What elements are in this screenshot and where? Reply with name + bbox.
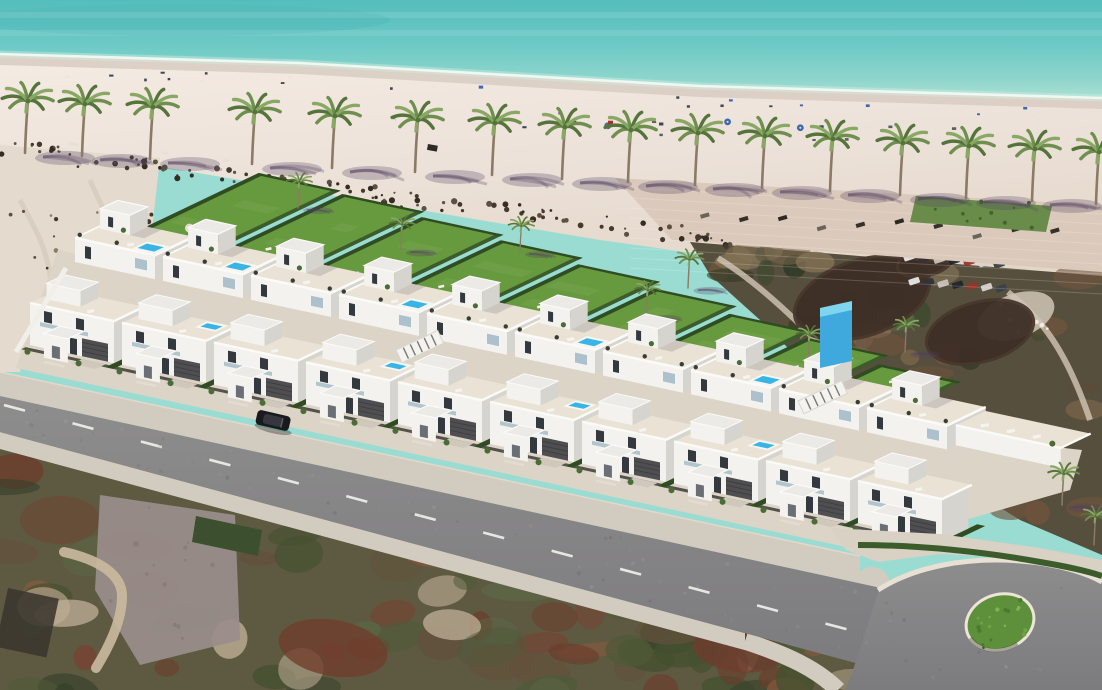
debris-rock: [374, 196, 378, 200]
palm-crown: [83, 102, 88, 107]
asphalt-fleck: [620, 537, 622, 539]
front-shrub: [628, 479, 634, 485]
debris-rock: [190, 174, 194, 178]
debris-rock: [368, 186, 373, 191]
parapet-planter: [944, 419, 948, 423]
debris-rock: [389, 197, 395, 203]
parapet-planter: [782, 384, 786, 388]
window: [877, 416, 883, 429]
porch-door: [604, 464, 612, 478]
debris-rock: [486, 201, 492, 207]
asphalt-fleck: [606, 564, 608, 566]
rust-patch: [20, 496, 100, 544]
debris-rock: [606, 216, 608, 218]
porch-door: [696, 484, 704, 498]
dirt-speck: [210, 563, 215, 568]
debris-rock: [440, 209, 443, 212]
asphalt-fleck: [419, 514, 421, 516]
dirt-speck: [162, 582, 167, 587]
asphalt-fleck: [1060, 587, 1063, 590]
front-shrub: [260, 400, 266, 406]
porch-door: [144, 365, 152, 379]
parapet-planter: [555, 335, 559, 339]
terrace-plant: [121, 228, 126, 233]
window: [504, 410, 512, 423]
porch-door: [328, 405, 336, 419]
lot-rock: [9, 213, 13, 217]
asphalt-fleck: [79, 439, 82, 442]
sea-light-streak: [0, 30, 1102, 36]
parapet-planter: [856, 400, 860, 404]
window: [44, 311, 52, 324]
palm-crown: [26, 99, 31, 104]
asphalt-fleck: [683, 591, 687, 595]
beach-furniture-speck: [1023, 107, 1027, 110]
window: [349, 303, 355, 316]
beach-furniture-speck: [391, 119, 395, 122]
asphalt-fleck: [529, 524, 533, 528]
asphalt-fleck: [42, 434, 45, 437]
asphalt-fleck: [159, 469, 163, 473]
debris-rock: [658, 227, 662, 231]
beach-furniture-speck: [109, 75, 113, 77]
parapet-planter: [680, 362, 684, 366]
asphalt-fleck: [37, 433, 40, 436]
palm-crown: [151, 105, 156, 110]
porch-door: [788, 504, 796, 518]
parapet-planter: [606, 346, 610, 350]
debris-rock: [176, 174, 178, 176]
debris-rock: [578, 222, 584, 228]
terrace-plant: [825, 379, 830, 384]
lot-rock: [96, 211, 99, 214]
debris-rock: [416, 204, 419, 207]
window: [596, 430, 604, 443]
beach-sunbed: [161, 151, 167, 155]
beach-furniture-speck: [769, 105, 772, 107]
front-shrub: [352, 420, 358, 426]
debris-rock: [721, 239, 723, 241]
asphalt-fleck: [785, 629, 787, 631]
debris-rock: [710, 237, 712, 239]
parapet-planter: [78, 233, 82, 237]
beach-furniture-speck: [812, 139, 815, 141]
parapet-planter: [166, 252, 170, 256]
debris-rock: [442, 201, 445, 204]
debris-rock: [244, 173, 248, 177]
asphalt-fleck: [795, 624, 799, 628]
asphalt-fleck: [192, 461, 194, 463]
lawn-speck: [1003, 221, 1007, 225]
lot-rock: [50, 214, 53, 217]
front-shrub: [24, 349, 30, 355]
beach-furniture-speck: [144, 79, 147, 82]
window: [173, 265, 179, 278]
palm-crown: [493, 121, 498, 126]
debris-rock: [503, 201, 509, 207]
parapet-planter: [907, 411, 911, 415]
asphalt-fleck: [865, 641, 868, 644]
window: [548, 311, 553, 322]
asphalt-fleck: [36, 409, 38, 411]
debris-rock: [461, 209, 464, 212]
debris-rock: [37, 142, 42, 147]
beach-furniture-speck: [719, 102, 723, 104]
window: [108, 217, 113, 228]
debris-rock: [77, 165, 80, 168]
beach-furniture-speck: [205, 72, 208, 74]
beach-furniture-speck: [1070, 141, 1074, 143]
beach-furniture-speck: [888, 126, 892, 129]
asphalt-fleck: [515, 533, 517, 535]
debris-rock: [541, 209, 543, 211]
entrance-door: [530, 437, 537, 455]
window: [352, 377, 360, 390]
dirt-speck: [152, 564, 155, 567]
debris-rock: [701, 235, 704, 238]
beach-sunbed: [59, 148, 65, 152]
dirt-speck: [187, 542, 189, 544]
debris-rock: [409, 192, 412, 195]
beach-furniture-speck: [845, 138, 849, 141]
palm-crown: [1094, 515, 1097, 518]
debris-rock: [415, 194, 419, 198]
front-shrub: [668, 487, 674, 493]
window: [228, 351, 236, 364]
entrance-door: [346, 397, 353, 415]
asphalt-fleck: [658, 579, 662, 583]
debris-rock: [624, 232, 629, 237]
asphalt-fleck: [889, 620, 891, 622]
window: [628, 437, 636, 450]
front-shrub: [392, 428, 398, 434]
debris-rock: [348, 190, 352, 194]
debris-rock: [680, 224, 684, 228]
asphalt-fleck: [695, 585, 699, 589]
debris-rock: [161, 168, 165, 172]
asphalt-fleck: [435, 528, 437, 530]
debris-rock: [422, 206, 427, 211]
asphalt-fleck: [396, 509, 398, 511]
beach-furniture-speck: [1036, 114, 1039, 117]
window: [261, 284, 267, 297]
courtyard-speck: [1040, 323, 1045, 328]
debris-rock: [233, 180, 236, 183]
dirt-speck: [173, 623, 177, 627]
beach-furniture-speck: [720, 104, 723, 107]
window: [444, 397, 452, 410]
beach-furniture-speck: [729, 99, 733, 101]
window: [372, 273, 377, 284]
debris-rock: [53, 146, 55, 148]
parapet-planter: [518, 327, 522, 331]
beach-furniture-speck: [994, 111, 998, 113]
palm-crown: [1062, 472, 1065, 475]
debris-rock: [393, 192, 395, 194]
debris-rock: [226, 167, 232, 173]
beach-furniture-speck: [652, 121, 656, 123]
parapet-planter: [203, 259, 207, 263]
beach-furniture-speck: [687, 105, 690, 107]
window: [76, 318, 84, 331]
asphalt-fleck: [890, 612, 893, 615]
debris-rock: [600, 225, 604, 229]
lawn-speck: [979, 217, 982, 220]
window: [812, 368, 817, 379]
entrance-door: [806, 496, 813, 514]
front-shrub: [576, 467, 582, 473]
window: [284, 254, 289, 265]
front-shrub: [444, 439, 450, 445]
asphalt-fleck: [904, 659, 908, 663]
window: [720, 456, 728, 469]
debris-rock: [624, 228, 626, 230]
entrance-door: [622, 456, 629, 474]
beach-furniture-speck: [550, 94, 553, 96]
asphalt-fleck: [92, 432, 94, 434]
debris-rock: [220, 178, 224, 182]
palm-crown: [253, 110, 258, 115]
debris-rock: [383, 199, 386, 202]
asphalt-fleck: [158, 444, 162, 448]
asphalt-fleck: [225, 476, 229, 480]
beach-furniture-speck: [200, 80, 204, 83]
asphalt-fleck: [1038, 668, 1042, 672]
debris-rock: [336, 182, 339, 185]
asphalt-fleck: [407, 501, 409, 503]
palm-crown: [647, 289, 649, 291]
asphalt-fleck: [411, 513, 414, 516]
window: [613, 360, 619, 373]
debris-rock: [550, 209, 553, 212]
beach-umbrella-top: [799, 127, 801, 129]
beach-furniture-speck: [866, 104, 870, 107]
window: [260, 357, 268, 370]
asphalt-fleck: [186, 458, 188, 460]
debris-rock: [522, 210, 525, 213]
terrace-plant: [473, 303, 478, 308]
lot-rock: [46, 267, 49, 270]
asphalt-fleck: [939, 668, 941, 670]
palm-crown: [763, 134, 768, 139]
debris-rock: [541, 215, 545, 219]
terrace-plant: [1049, 441, 1055, 447]
parapet-planter: [115, 241, 119, 245]
terrace-plant: [737, 360, 742, 365]
dirt-speck: [183, 546, 187, 550]
debris-rock: [660, 237, 665, 242]
parapet-planter: [731, 373, 735, 377]
asphalt-fleck: [885, 602, 888, 605]
palm-crown: [688, 258, 691, 261]
asphalt-fleck: [853, 590, 857, 594]
window: [460, 292, 465, 303]
asphalt-fleck: [333, 511, 337, 515]
front-shrub: [812, 519, 818, 525]
debris-rock: [724, 244, 729, 249]
front-shrub: [116, 369, 122, 375]
window: [789, 398, 795, 411]
beach-furniture-speck: [161, 72, 165, 74]
window: [701, 379, 707, 392]
asphalt-fleck: [838, 646, 841, 649]
beach-furniture-speck: [288, 76, 292, 78]
window: [168, 338, 176, 351]
window: [136, 331, 144, 344]
sea-light-streak: [0, 12, 1102, 18]
parapet-planter: [254, 270, 258, 274]
asphalt-fleck: [641, 558, 644, 561]
asphalt-fleck: [880, 588, 883, 591]
lawn-speck: [1030, 226, 1034, 230]
beach-furniture-speck: [390, 87, 393, 90]
palm-crown: [1033, 147, 1038, 152]
palm-crown: [1097, 150, 1102, 155]
terrace-plant: [649, 341, 654, 346]
debris-rock: [328, 183, 331, 186]
debris-rock: [372, 196, 375, 199]
debris-rock: [679, 236, 685, 242]
window: [536, 417, 544, 430]
entrance-door: [162, 357, 169, 375]
porch-door: [52, 346, 60, 360]
asphalt-fleck: [219, 472, 223, 476]
debris-rock: [561, 219, 565, 223]
asphalt-fleck: [147, 467, 149, 469]
debris-rock: [555, 217, 558, 220]
palm-crown: [298, 181, 300, 183]
beach-sunbed: [223, 158, 229, 162]
window: [636, 330, 641, 341]
lawn-speck: [961, 212, 965, 216]
beach-furniture-speck: [522, 126, 526, 128]
asphalt-fleck: [272, 472, 274, 474]
asphalt-fleck: [631, 562, 635, 566]
beach-furniture-speck: [800, 104, 803, 106]
asphalt-fleck: [590, 585, 594, 589]
dirt-speck: [133, 541, 139, 547]
asphalt-fleck: [725, 562, 729, 566]
front-shrub: [300, 408, 306, 414]
parapet-planter: [504, 324, 508, 328]
window: [412, 390, 420, 403]
window: [780, 469, 788, 482]
render-scene: [0, 0, 1102, 690]
parapet-planter: [643, 354, 647, 358]
window: [724, 349, 729, 360]
lot-rock: [33, 256, 36, 259]
debris-rock: [667, 224, 672, 229]
window: [812, 476, 820, 489]
lawn-speck: [989, 211, 993, 215]
dirt-speck: [148, 506, 151, 509]
asphalt-fleck: [311, 474, 315, 478]
debris-rock: [345, 185, 350, 190]
asphalt-fleck: [577, 571, 581, 575]
debris-rock: [451, 198, 457, 204]
front-shrub: [720, 499, 726, 505]
asphalt-fleck: [248, 487, 251, 490]
window: [85, 246, 91, 259]
lawn-speck: [934, 208, 937, 211]
beach-furniture-speck: [168, 78, 171, 80]
parapet-planter: [430, 308, 434, 312]
beach-furniture-speck: [433, 85, 436, 88]
courtyard-speck: [1035, 320, 1039, 324]
asphalt-fleck: [931, 675, 935, 679]
parapet-planter: [870, 403, 874, 407]
palm-crown: [831, 137, 836, 142]
dirt-speck: [184, 559, 187, 562]
asphalt-fleck: [309, 475, 311, 477]
palm-crown: [967, 144, 972, 149]
debris-rock: [38, 150, 41, 153]
palm-crown: [808, 333, 810, 335]
parapet-planter: [467, 316, 471, 320]
asphalt-fleck: [902, 618, 906, 622]
asphalt-fleck: [203, 460, 205, 462]
asphalt-fleck: [230, 450, 232, 452]
courtyard-speck: [1046, 327, 1049, 330]
parapet-planter: [342, 289, 346, 293]
palm-crown: [333, 114, 338, 119]
beach-furniture-speck: [713, 105, 716, 108]
window: [320, 370, 328, 383]
debris-rock: [31, 145, 33, 147]
asphalt-fleck: [724, 614, 727, 617]
palm-crown: [563, 125, 568, 130]
palm-crown: [520, 225, 522, 227]
beach-sunbed: [73, 143, 79, 147]
debris-rock: [695, 234, 701, 240]
debris-rock: [458, 202, 463, 207]
asphalt-fleck: [161, 437, 164, 440]
debris-rock: [696, 239, 699, 242]
window: [904, 496, 912, 509]
parapet-planter: [291, 278, 295, 282]
asphalt-fleck: [978, 651, 981, 654]
asphalt-fleck: [89, 418, 91, 420]
front-shrub: [168, 380, 174, 386]
beach-furniture-speck: [66, 76, 69, 78]
dirt-speck: [145, 572, 149, 576]
scrub-blob: [757, 260, 774, 286]
front-shrub: [208, 388, 214, 394]
palm-crown: [629, 128, 634, 133]
terrace-plant: [297, 265, 302, 270]
palm-crown: [416, 118, 421, 123]
terrace-plant: [913, 398, 918, 403]
lot-rock: [149, 213, 153, 217]
beach-furniture-speck: [676, 96, 679, 98]
asphalt-fleck: [432, 506, 436, 510]
asphalt-fleck: [29, 423, 33, 427]
asphalt-fleck: [317, 476, 320, 479]
asphalt-fleck: [137, 464, 140, 467]
window: [900, 387, 905, 398]
dirt-speck: [109, 599, 113, 603]
terrace-plant: [561, 322, 566, 327]
entrance-door: [898, 516, 905, 534]
debris-rock: [640, 220, 646, 226]
front-shrub: [760, 507, 766, 513]
asphalt-fleck: [609, 536, 612, 539]
lot-rock: [54, 217, 58, 221]
debris-rock: [504, 207, 509, 212]
debris-rock: [609, 226, 614, 231]
asphalt-fleck: [649, 599, 652, 602]
asphalt-fleck: [64, 419, 68, 423]
